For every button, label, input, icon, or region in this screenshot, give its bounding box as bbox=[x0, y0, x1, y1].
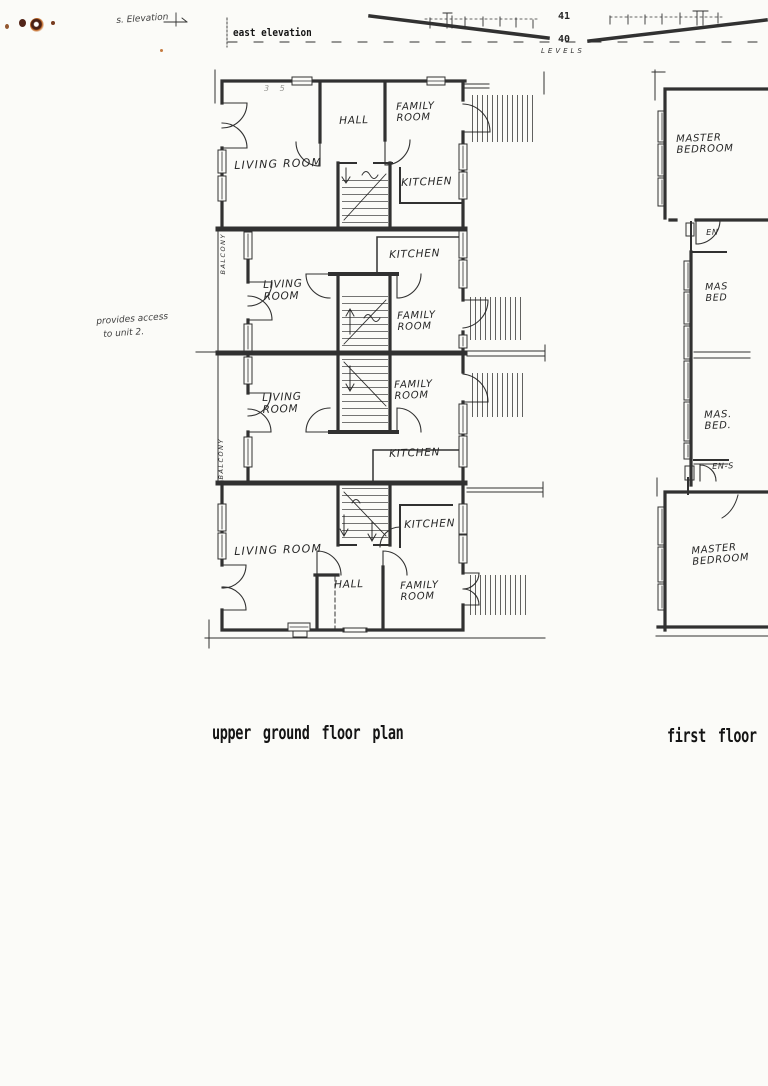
rust-stain bbox=[5, 24, 9, 29]
room-label-master-bedroom: MAS. BED. bbox=[704, 409, 747, 433]
room-label-kitchen: KITCHEN bbox=[401, 176, 452, 190]
room-label-ensuite: EN bbox=[706, 229, 719, 238]
external-stair-hatch bbox=[472, 373, 527, 417]
room-label-ensuite: EN-S bbox=[712, 462, 734, 472]
room-label-family-room: FAMILY ROOM bbox=[400, 579, 451, 603]
room-label-living-room: LIVING ROOM bbox=[262, 391, 313, 416]
room-label-family-room: FAMILY ROOM bbox=[396, 100, 445, 124]
scanned-drawing-sheet: s. Elevation east elevation 41 40 LEVELS… bbox=[0, 0, 768, 1086]
stair-treads bbox=[342, 180, 388, 224]
rust-stain bbox=[30, 18, 44, 32]
stair-treads bbox=[342, 359, 388, 427]
room-label-hall: HALL bbox=[339, 115, 369, 128]
room-label-kitchen: KITCHEN bbox=[404, 518, 455, 532]
room-label-master-bedroom: MASTER BEDROOM bbox=[676, 132, 743, 157]
external-stair-hatch bbox=[470, 575, 528, 615]
room-label-kitchen: KITCHEN bbox=[389, 447, 440, 461]
rust-stain bbox=[160, 49, 163, 52]
east-elevation-label: east elevation bbox=[233, 26, 312, 39]
stair-treads bbox=[342, 488, 388, 540]
room-label-master-bedroom: MAS BED bbox=[705, 282, 744, 305]
room-label-family-room: FAMILY ROOM bbox=[394, 378, 445, 402]
room-label-kitchen: KITCHEN bbox=[389, 248, 440, 262]
rust-stain bbox=[19, 19, 26, 27]
balcony-label: BALCONY bbox=[219, 233, 227, 275]
rust-stain bbox=[51, 21, 55, 25]
room-label-family-room: FAMILY ROOM bbox=[397, 309, 448, 333]
upper-ground-floor-plan-caption: upper ground floor plan bbox=[212, 722, 403, 744]
external-stair-hatch bbox=[470, 297, 525, 340]
pencil-mark: 3 5 bbox=[264, 84, 289, 93]
balcony-label: BALCONY bbox=[217, 438, 225, 480]
stair-treads bbox=[342, 296, 388, 348]
levels-caption: LEVELS bbox=[541, 47, 585, 55]
level-41-label: 41 bbox=[558, 11, 570, 22]
first-floor-caption: first floor bbox=[667, 725, 757, 747]
room-label-living-room: LIVING ROOM bbox=[263, 278, 314, 303]
plan-linework bbox=[0, 0, 768, 1086]
east-elevation-marker bbox=[164, 13, 227, 47]
external-stair-hatch bbox=[472, 95, 533, 142]
room-label-hall: HALL bbox=[334, 579, 364, 592]
level-40-label: 40 bbox=[558, 34, 570, 45]
